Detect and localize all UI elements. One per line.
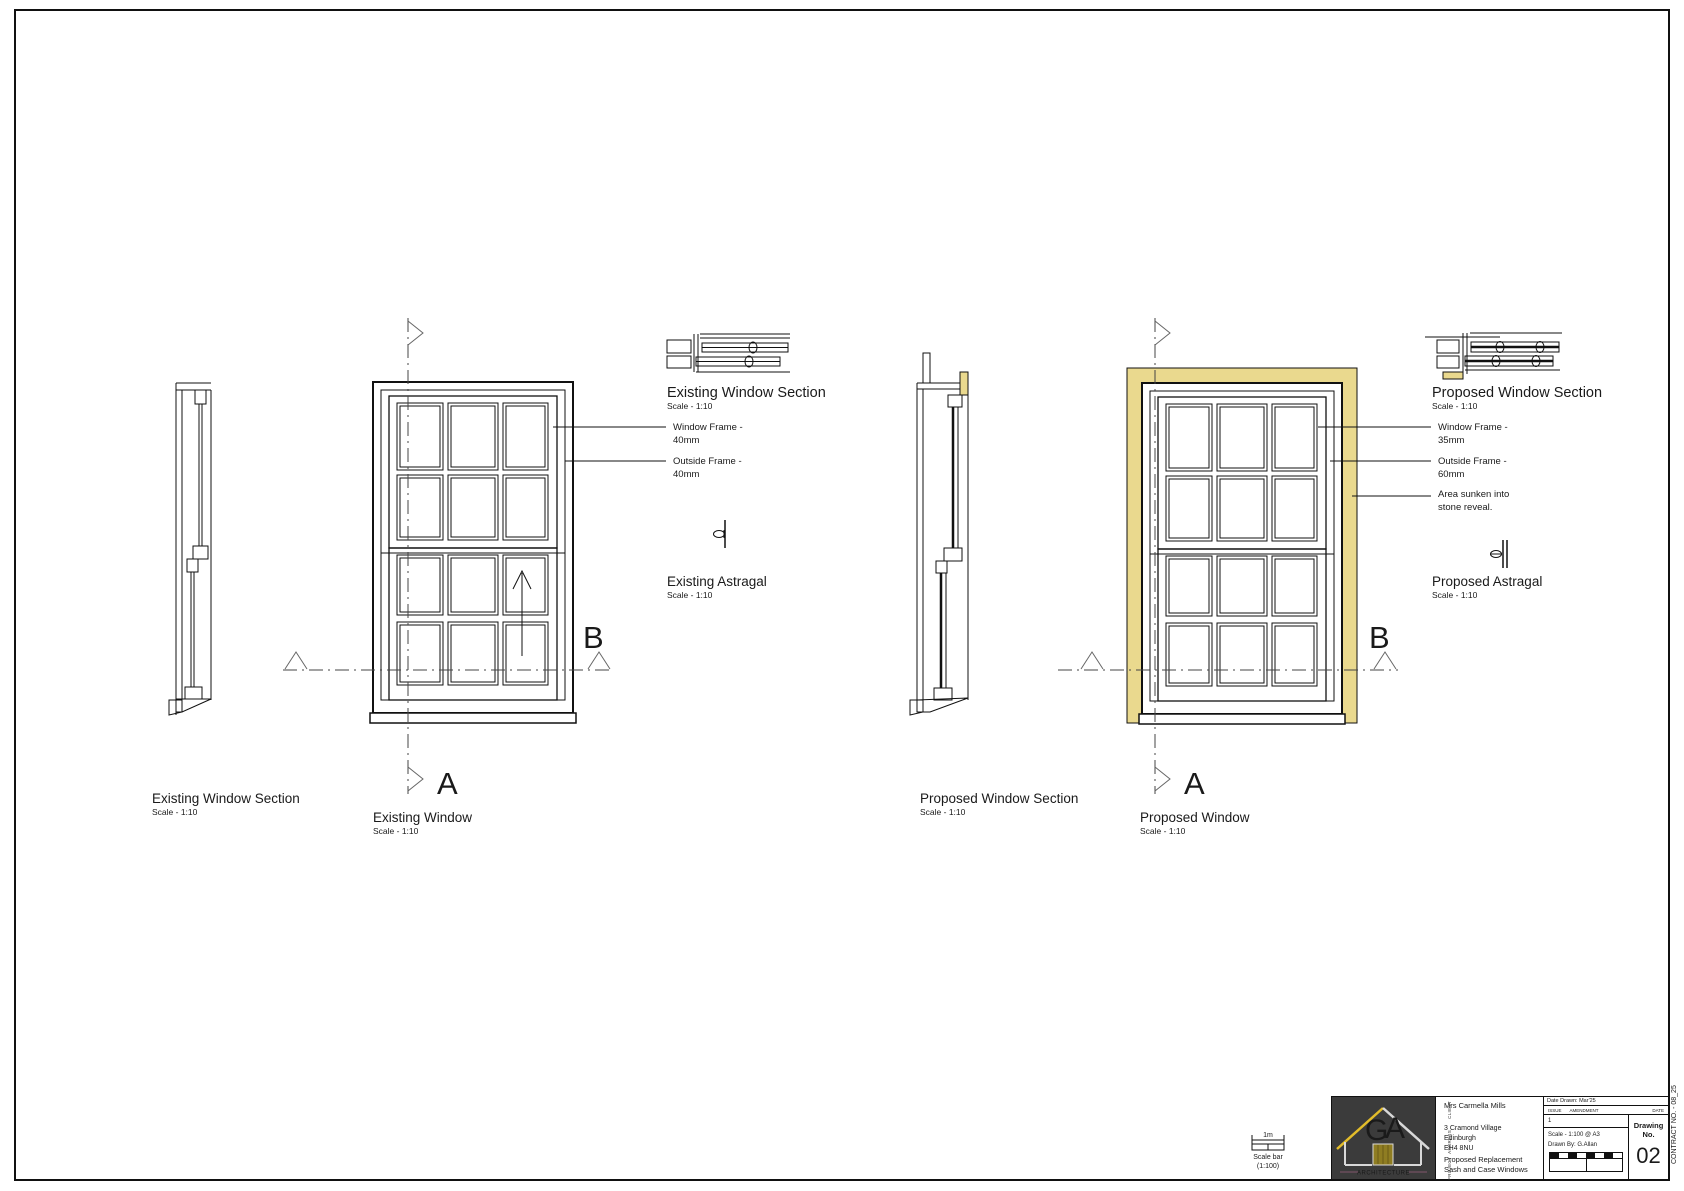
address-line2: Edinburgh xyxy=(1444,1134,1541,1144)
client-entry: CLIENT Mrs Carmella Mills xyxy=(1444,1101,1541,1111)
logo-letter-a: A xyxy=(1385,1112,1405,1145)
existing-window-frame-note-line1: Window Frame - xyxy=(673,422,743,433)
company-logo: G A ARCHITECTURE xyxy=(1332,1097,1435,1179)
project-label: PROJECT xyxy=(1445,1157,1455,1180)
proposed-outside-frame-note-line1: Outside Frame - xyxy=(1438,456,1507,467)
proposed-plan-section-drawing xyxy=(1425,333,1562,379)
drawing-number-cell: Drawing No. 02 xyxy=(1629,1115,1668,1179)
existing-outside-frame-note-line1: Outside Frame - xyxy=(673,456,742,467)
proposed-window-frame-note-line2: 35mm xyxy=(1438,435,1464,446)
date-header: DATE xyxy=(1652,1106,1664,1114)
section-marker-a-label-proposed: A xyxy=(1184,766,1205,801)
date-drawn: Date Drawn: Mar'25 xyxy=(1544,1097,1668,1106)
existing-side-section-title: Existing Window Section xyxy=(152,791,300,806)
drawing-number-value: 02 xyxy=(1629,1143,1668,1169)
scale-bar-boxes xyxy=(1549,1159,1623,1172)
address-line3: EH4 8NU xyxy=(1444,1144,1541,1154)
proposed-side-section-drawing xyxy=(910,353,968,715)
drawing-sheet: A B Existing Window Section Scale - 1:10… xyxy=(0,0,1684,1191)
proposed-reveal-note-line2: stone reveal. xyxy=(1438,502,1492,513)
amendment-header: AMENDMENT xyxy=(1570,1106,1599,1114)
scale-bar-caption-line2: (1:100) xyxy=(1257,1163,1279,1170)
scale-bar-length-label: 1m xyxy=(1263,1132,1273,1139)
existing-outside-frame-note-line2: 40mm xyxy=(673,469,699,480)
logo-subtitle: ARCHITECTURE xyxy=(1357,1171,1410,1177)
existing-window-drawing xyxy=(370,382,576,723)
drawn-by: Drawn By: G.Allan xyxy=(1548,1140,1628,1150)
scale-bar-caption-line1: Scale bar xyxy=(1253,1154,1283,1161)
existing-astragal-scale: Scale - 1:10 xyxy=(667,590,713,600)
project-entry: PROJECT Proposed Replacement Sash and Ca… xyxy=(1444,1155,1541,1175)
proposed-astragal-title: Proposed Astragal xyxy=(1432,574,1542,589)
drawing-canvas: A B Existing Window Section Scale - 1:10… xyxy=(0,0,1684,1191)
title-block-info: CLIENT Mrs Carmella Mills ADDRESS 3 Cram… xyxy=(1435,1097,1544,1179)
address-line1: 3 Cramond Village xyxy=(1444,1124,1541,1134)
existing-plan-section-drawing xyxy=(667,334,790,372)
proposed-side-section-scale: Scale - 1:10 xyxy=(920,807,966,817)
proposed-outside-frame-note-line2: 60mm xyxy=(1438,469,1464,480)
section-marker-a-label: A xyxy=(437,766,458,801)
existing-astragal-title: Existing Astragal xyxy=(667,574,767,589)
existing-plan-section-title: Existing Window Section xyxy=(667,385,826,401)
drawing-number-label: Drawing No. xyxy=(1629,1121,1668,1139)
address-entry: ADDRESS 3 Cramond Village Edinburgh EH4 … xyxy=(1444,1124,1541,1154)
proposed-astragal-scale: Scale - 1:10 xyxy=(1432,590,1478,600)
existing-window-title: Existing Window xyxy=(373,810,472,825)
proposed-side-section-title: Proposed Window Section xyxy=(920,791,1078,806)
titleblock-scale-bar xyxy=(1544,1150,1628,1179)
project-line2: Sash and Case Windows xyxy=(1444,1165,1541,1175)
title-block: G A ARCHITECTURE CLIENT Mrs Carmella Mil… xyxy=(1331,1096,1669,1180)
existing-plan-section-scale: Scale - 1:10 xyxy=(667,401,713,411)
contract-number: CONTRACT NO. - 08_25 xyxy=(1671,1064,1683,1164)
address-label: ADDRESS xyxy=(1445,1130,1455,1154)
existing-side-section-drawing xyxy=(169,383,211,715)
proposed-window-frame-note-line1: Window Frame - xyxy=(1438,422,1508,433)
checker-scale-bar xyxy=(1549,1152,1623,1159)
issue-number: 1 xyxy=(1544,1115,1628,1128)
proposed-reveal-note-line1: Area sunken into xyxy=(1438,489,1509,500)
proposed-window-scale: Scale - 1:10 xyxy=(1140,826,1186,836)
title-block-meta: Date Drawn: Mar'25 ISSUE AMENDMENT DATE … xyxy=(1544,1097,1668,1179)
logo-house-icon: G A ARCHITECTURE xyxy=(1332,1097,1435,1181)
issue-header-row: ISSUE AMENDMENT DATE xyxy=(1544,1106,1668,1115)
sheet-border xyxy=(15,10,1669,1180)
existing-side-section-scale: Scale - 1:10 xyxy=(152,807,198,817)
proposed-window-drawing xyxy=(1139,383,1345,724)
existing-window-scale: Scale - 1:10 xyxy=(373,826,419,836)
client-name: Mrs Carmella Mills xyxy=(1444,1101,1541,1111)
proposed-window-title: Proposed Window xyxy=(1140,810,1250,825)
existing-astragal-drawing xyxy=(714,520,726,548)
proposed-astragal-drawing xyxy=(1490,540,1507,568)
client-label: CLIENT xyxy=(1445,1101,1455,1119)
section-marker-b-label-proposed: B xyxy=(1369,620,1390,655)
proposed-plan-section-scale: Scale - 1:10 xyxy=(1432,401,1478,411)
project-line1: Proposed Replacement xyxy=(1444,1155,1541,1165)
proposed-plan-section-title: Proposed Window Section xyxy=(1432,385,1602,401)
section-marker-b-label: B xyxy=(583,620,604,655)
existing-window-frame-note-line2: 40mm xyxy=(673,435,699,446)
sheet-scale-note: Scale - 1:100 @ A3 xyxy=(1548,1130,1628,1140)
issue-header: ISSUE xyxy=(1548,1106,1562,1114)
